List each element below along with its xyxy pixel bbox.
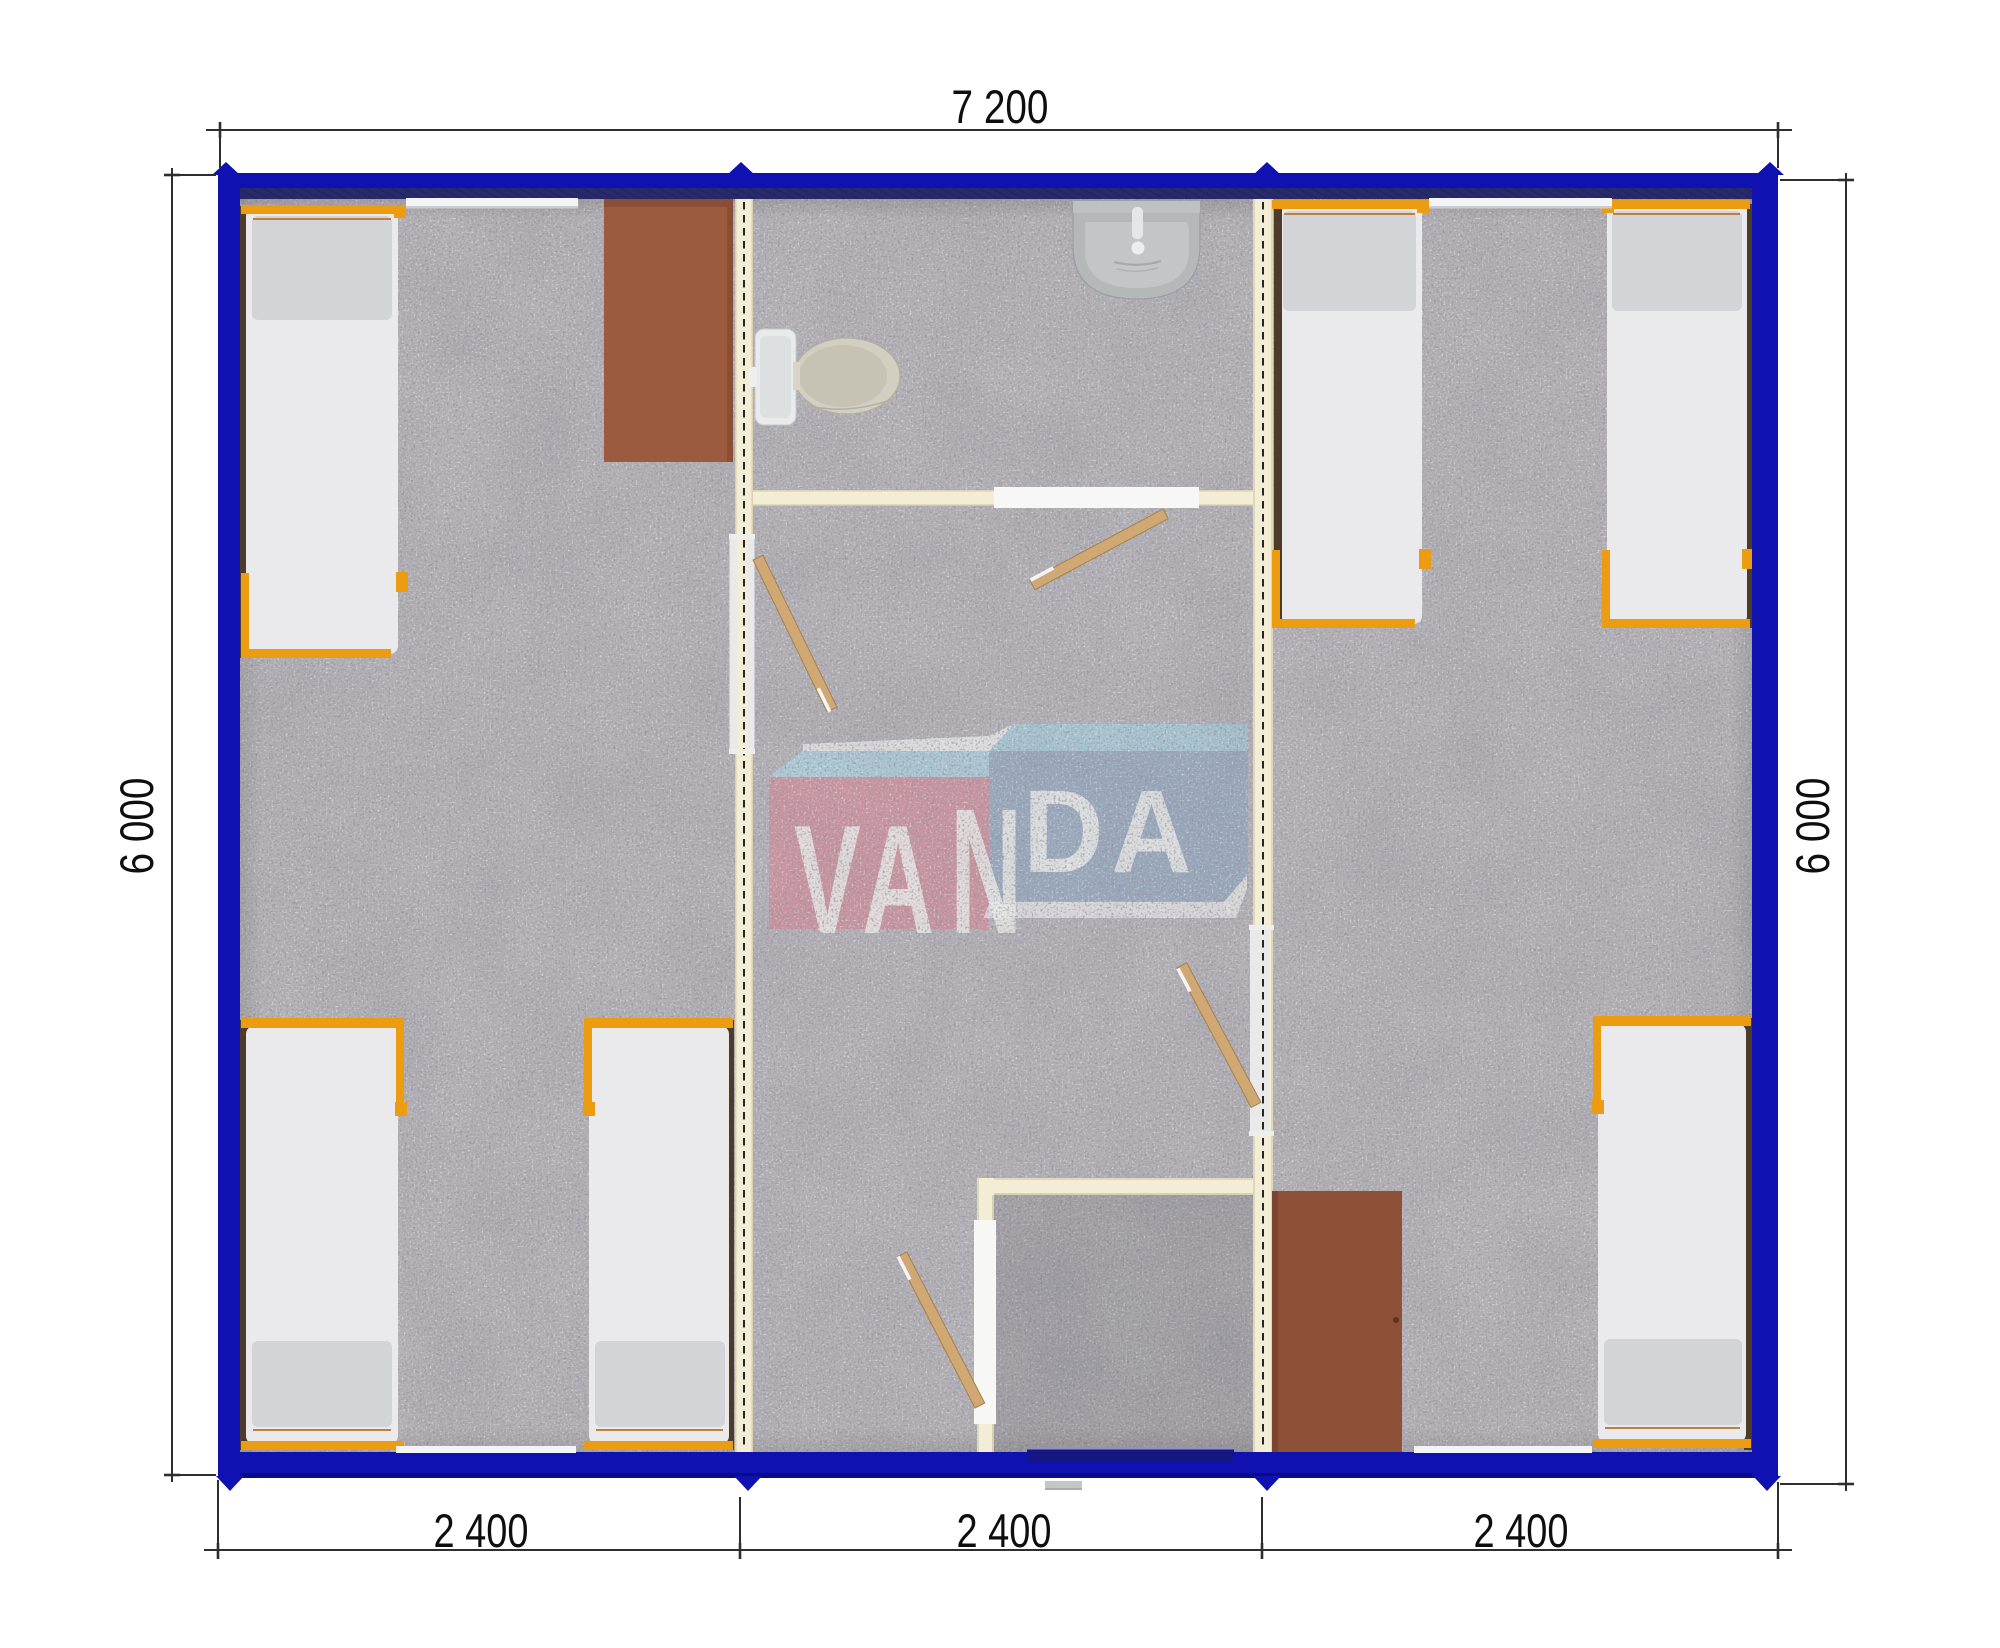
- svg-text:2 400: 2 400: [1474, 1504, 1569, 1557]
- svg-text:2 400: 2 400: [957, 1504, 1052, 1557]
- svg-text:2 400: 2 400: [434, 1504, 529, 1557]
- svg-text:6 000: 6 000: [110, 778, 163, 875]
- svg-text:7 200: 7 200: [952, 80, 1049, 133]
- svg-text:6 000: 6 000: [1786, 778, 1839, 875]
